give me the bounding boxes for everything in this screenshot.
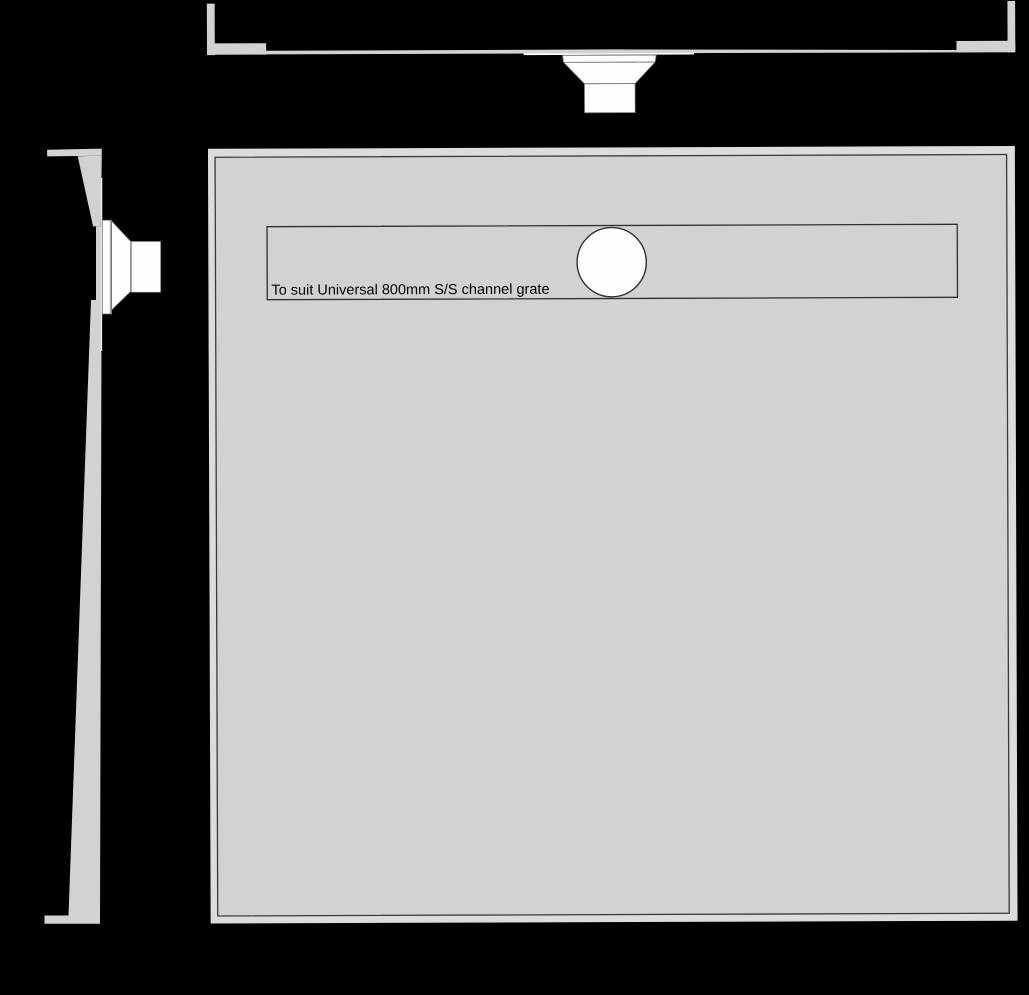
svg-text:To suit Universal 800mm S/S ch: To suit Universal 800mm S/S channel grat… <box>271 282 549 299</box>
